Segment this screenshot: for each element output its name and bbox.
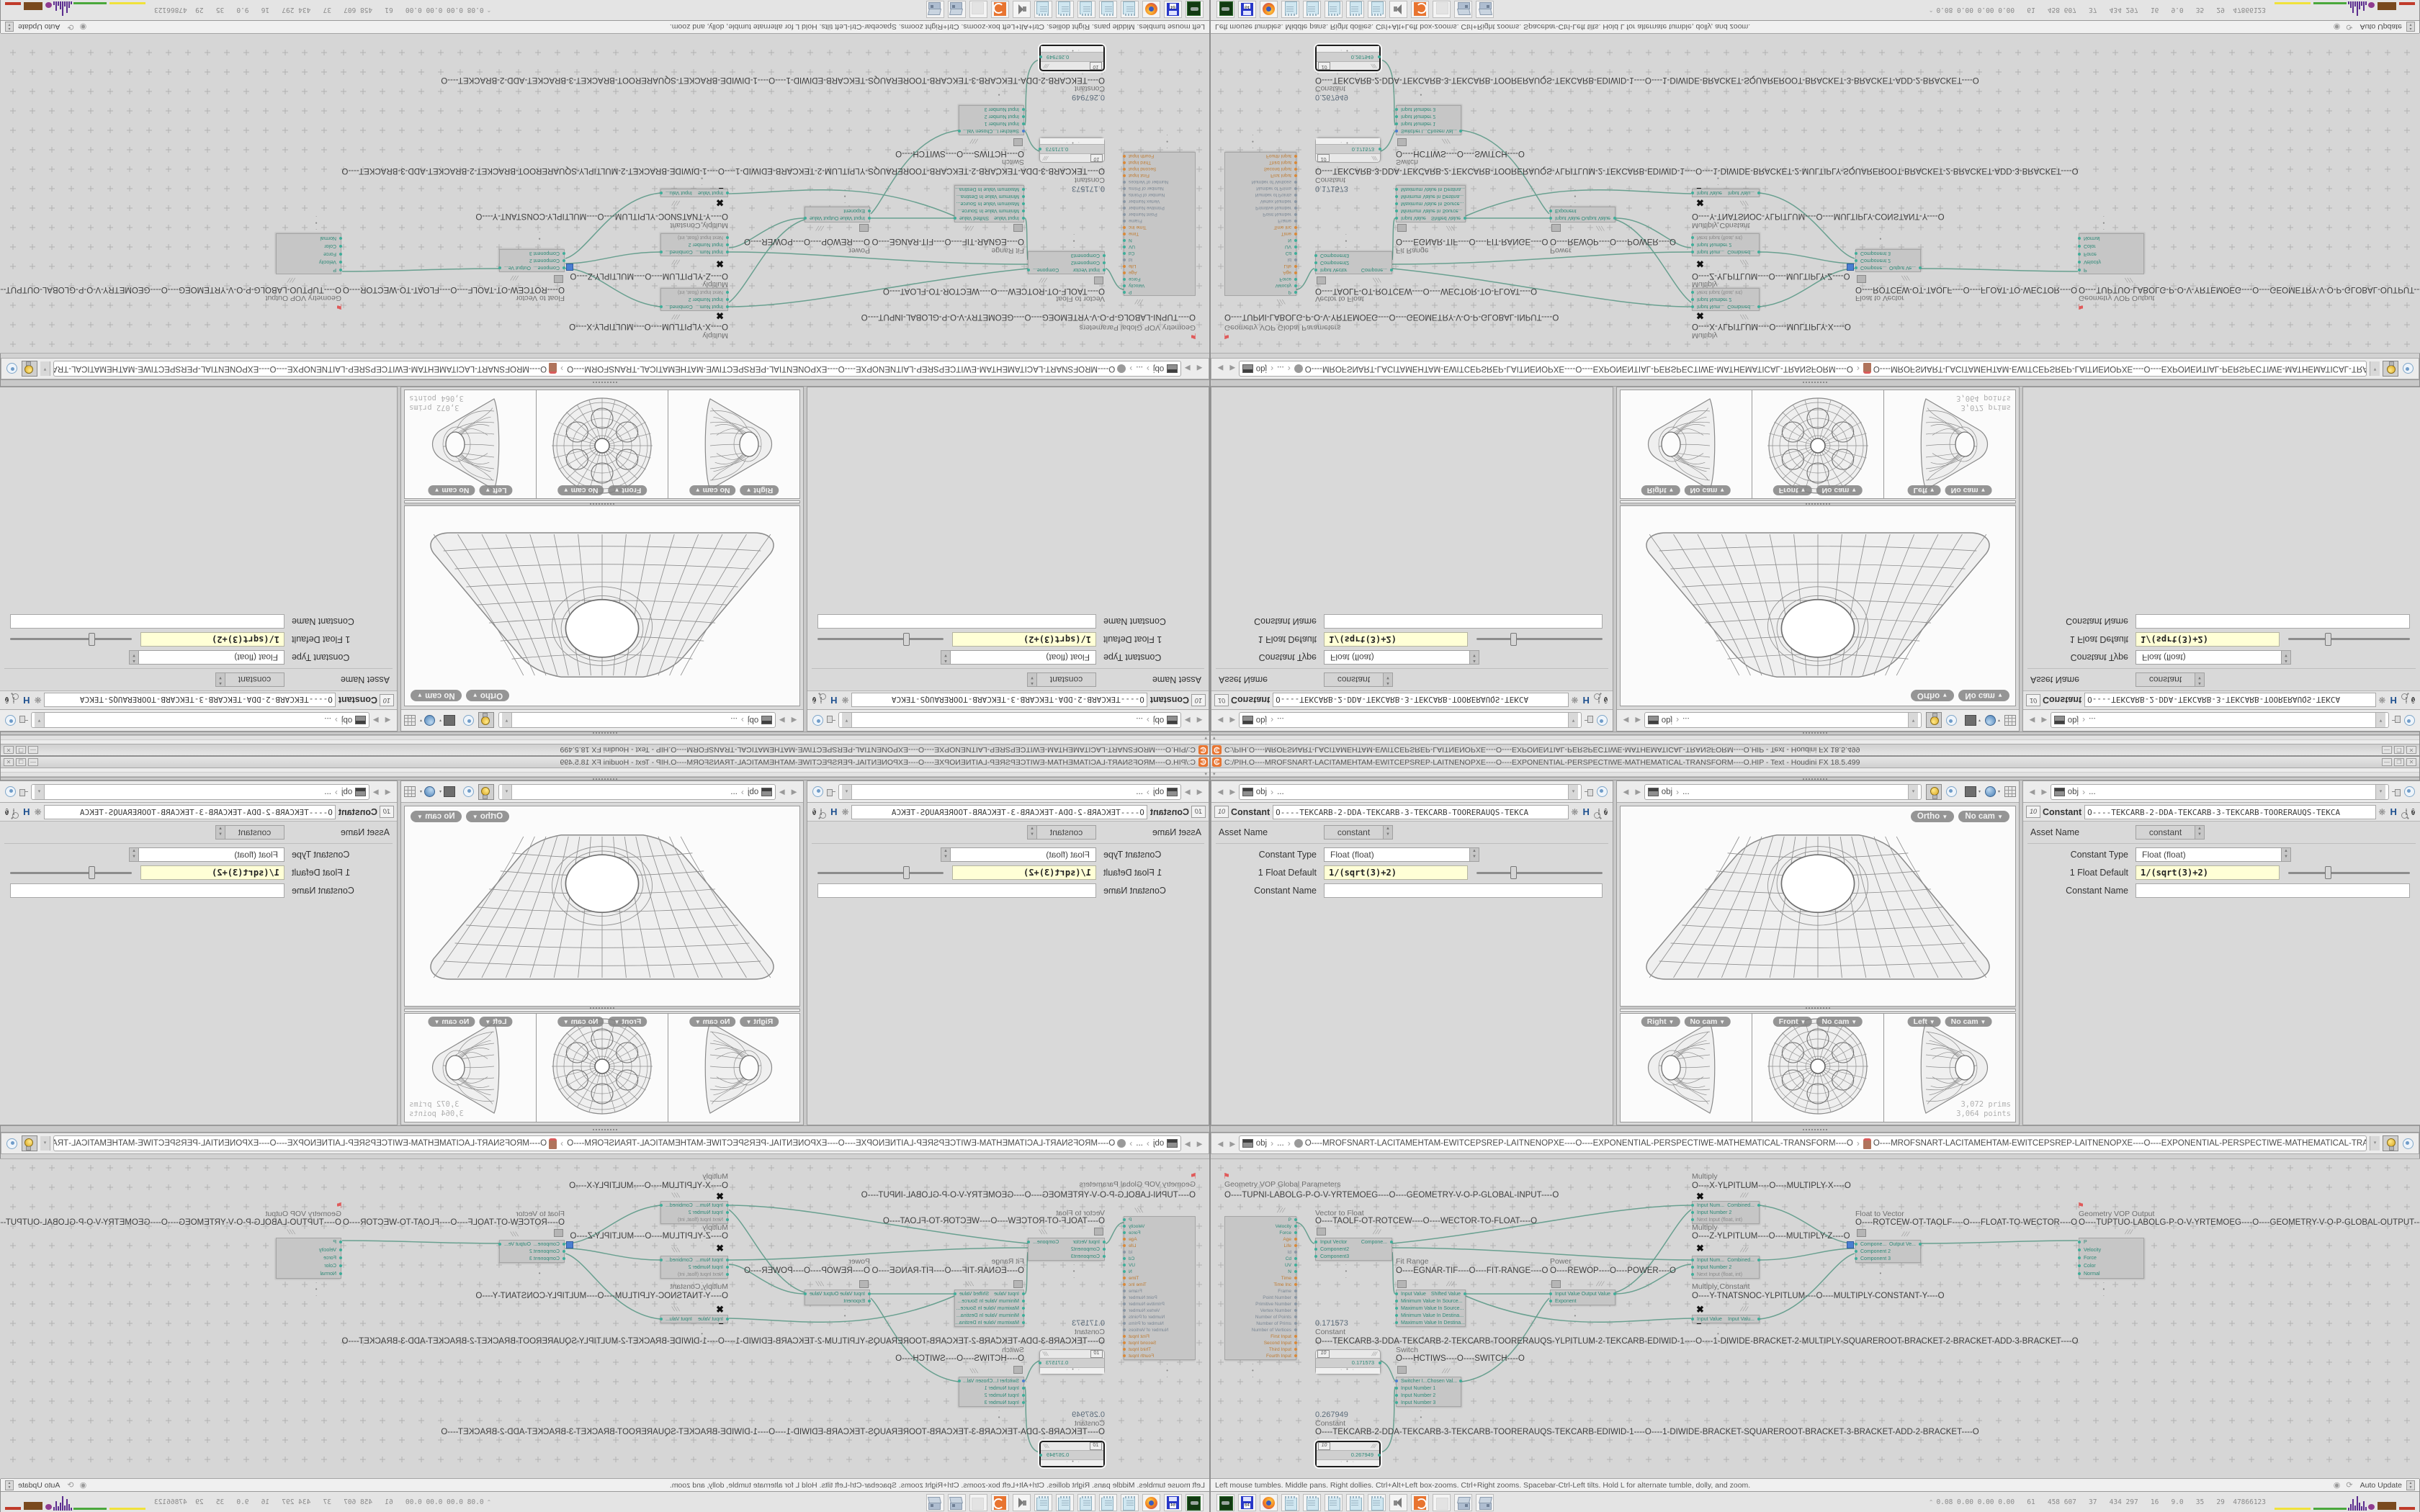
breadcrumb-ellipsis[interactable]: ... [324,716,331,725]
forward-arrow-icon[interactable]: ► [1183,364,1192,374]
back-arrow-icon[interactable]: ◄ [383,786,393,797]
notepad-toolbar-button[interactable] [1303,1494,1321,1511]
breadcrumb-ellipsis[interactable]: ... [1136,1139,1143,1148]
parameter-mode-icon[interactable]: 10 [1214,694,1229,706]
network-splitter[interactable] [1211,379,2419,387]
context-label[interactable]: obj [1256,1139,1267,1148]
network-editor[interactable]: ⚑Geometry VOP Global ParametersO----TUPN… [0,33,1209,354]
float-default-slider[interactable] [1476,865,1603,880]
viewport-front[interactable]: Front ▼ No cam ▼ [1752,1014,1884,1122]
camera-pill[interactable]: No cam ▼ [1958,811,2009,822]
float-default-slider[interactable] [1476,633,1603,647]
back-arrow-icon[interactable]: ◄ [2027,715,2037,726]
vertical-splitter[interactable] [804,780,807,1125]
shading-cube-icon[interactable] [444,786,455,797]
view-pill[interactable]: Front ▼ [1773,1017,1812,1027]
display-flag-icon[interactable]: ⚑ [2077,302,2084,311]
display-sphere-icon[interactable] [1985,715,1996,726]
node-box[interactable]: Input VectorCompone...Component2Componen… [1028,251,1105,274]
node-box[interactable]: Input ValueInput Valu... [660,1315,728,1323]
context-breadcrumb[interactable]: obj › ... ▾ [838,713,1181,729]
camera-pill[interactable]: No cam ▼ [1684,485,1731,495]
parent-crumb[interactable]: O----MROFSNART-LACITAMEHTAM-EWITCEPSREP-… [567,1139,1115,1148]
node-box[interactable]: Input Num...Combined...Input Number 2Nex… [660,233,728,256]
constant-name-input[interactable] [817,883,1096,898]
viewport-left[interactable]: Left ▼ No cam ▼ 3,072 prims3,064 points [1884,390,2015,498]
restore-button[interactable]: ❐ [16,746,26,754]
refresh-icon[interactable]: ⟳ [2346,1480,2352,1490]
notepad-toolbar-button[interactable] [1099,1494,1117,1511]
main-viewport[interactable]: Ortho ▼ No cam ▼ [1620,500,2016,706]
auto-update-label[interactable]: Auto Update [2360,23,2402,32]
node-box[interactable]: Compone...Output Ve...Component 2Compone… [1855,1240,1921,1263]
bypass-flag-icon[interactable]: ✖ [716,310,724,321]
bypass-flag-icon[interactable]: ✖ [716,258,724,269]
context-breadcrumb[interactable]: obj › ... ▾ [2051,713,2389,729]
camera-pill[interactable]: No cam ▼ [557,1017,604,1027]
ghost-toolbar-button[interactable] [1433,1,1451,19]
notepad-toolbar-button[interactable] [1281,1494,1299,1511]
float-default-input[interactable]: 1/(sqrt(3)+2) [2136,633,2280,647]
context-breadcrumb[interactable]: obj › ... ▾ [1239,784,1582,800]
bypass-flag-icon[interactable]: ✖ [1696,258,1704,269]
lighting-icon[interactable] [2383,361,2398,377]
restore-button[interactable]: ❐ [2394,746,2404,754]
float-default-input[interactable]: 1/(sqrt(3)+2) [952,865,1096,880]
forward-arrow-icon[interactable]: ► [371,715,380,726]
constant-type-dropdown[interactable]: Float (float)▲▼ [2136,847,2291,862]
help-icon[interactable]: ? [5,809,9,815]
shading-cube-icon[interactable] [1965,786,1976,797]
asset-name-stepper[interactable]: constant▲▼ [215,825,284,840]
link-target-icon[interactable] [463,715,474,726]
context-label[interactable]: obj [2068,716,2079,725]
link-target-icon[interactable] [6,1138,17,1149]
asset-name-stepper[interactable]: constant▲▼ [215,673,284,688]
node-box[interactable]: Input VectorCompone...Component2Componen… [1028,1238,1105,1261]
link-target-icon[interactable] [5,715,16,726]
forward-arrow-icon[interactable]: ► [1228,786,1237,797]
node-box[interactable]: Input ValueShifted ValueMinimum Value In… [1396,1290,1466,1327]
current-crumb[interactable]: O----MROFSNART-LACITAMEHTAM-EWITCEPSREP-… [53,1139,547,1148]
node-box[interactable]: Input VectorCompone...Component2Componen… [1315,1238,1392,1261]
viewport-splitter[interactable] [1620,1006,2016,1009]
pin-icon[interactable] [1584,788,1592,796]
node-name-input[interactable]: O----TEKCARB-2-DDA-TEKCARB-3-TEKCARB-TOO… [1273,805,1569,819]
back-arrow-icon[interactable]: ◄ [383,715,393,726]
view-pill[interactable]: Right ▼ [740,1017,779,1027]
camera-pill[interactable]: No cam ▼ [689,485,736,495]
node-box[interactable]: 10///0.171573 · • · [1039,138,1105,163]
projection-pill[interactable]: Ortho ▼ [1911,690,1954,701]
chevron-down-icon[interactable]: ▾ [842,714,852,728]
parent-crumb[interactable]: O----MROFSNART-LACITAMEHTAM-EWITCEPSREP-… [1305,364,1853,373]
chevron-down-icon[interactable]: ▾ [40,361,50,376]
breadcrumb-ellipsis[interactable]: ... [1136,364,1143,373]
context-breadcrumb[interactable]: obj › ... ▾ [1644,713,1922,729]
node-box[interactable]: 10///0.171573 · • · [1315,1349,1381,1374]
node-box[interactable]: 10///0.171573 · • · [1039,1349,1105,1374]
forward-arrow-icon[interactable]: ► [1633,715,1643,726]
back-arrow-icon[interactable]: ◄ [1216,364,1225,374]
constant-name-input[interactable] [1324,615,1603,629]
chevron-down-icon[interactable]: ▾ [2370,361,2380,376]
view-pill[interactable]: Left ▼ [479,1017,512,1027]
parameter-mode-icon[interactable]: 10 [2026,694,2040,706]
float-default-slider[interactable] [2288,633,2410,647]
close-button[interactable]: ✕ [2406,758,2416,766]
forward-arrow-icon[interactable]: ► [1633,786,1643,797]
parameter-mode-icon[interactable]: 10 [380,694,394,706]
pin-icon[interactable] [2391,716,2400,725]
display-badge-icon[interactable] [1847,264,1854,271]
snapshot-icon[interactable]: ◉ [80,22,87,32]
stepper-arrows-icon[interactable]: ▲▼ [216,826,225,839]
console-toolbar-button[interactable] [1186,1,1204,19]
notepad-toolbar-button[interactable] [1281,1,1299,19]
network-splitter[interactable] [1,379,1209,387]
parent-crumb[interactable]: O----MROFSNART-LACITAMEHTAM-EWITCEPSREP-… [1305,1139,1853,1148]
viewport-right[interactable]: Right ▼ No cam ▼ [1621,1014,1752,1122]
current-crumb[interactable]: O----MROFSNART-LACITAMEHTAM-EWITCEPSREP-… [1873,1139,2367,1148]
refresh-icon[interactable]: ⟳ [67,22,73,32]
slider-handle[interactable] [1510,634,1517,647]
print-toolbar-button[interactable] [1476,1,1494,19]
context-label[interactable]: obj [1662,716,1672,725]
slider-handle[interactable] [903,634,910,647]
node-box[interactable]: Input Num...Combined...Input Number 2Nex… [1692,1201,1760,1224]
context-label[interactable]: obj [1153,1139,1164,1148]
asset-name-stepper[interactable]: constant▲▼ [1324,673,1393,688]
view-pill[interactable]: Left ▼ [479,485,512,495]
node-box[interactable]: Input ValueOutput ValueExponent [1550,1290,1615,1305]
node-name-input[interactable]: O----TEKCARB-2-DDA-TEKCARB-3-TEKCARB-TOO… [1273,693,1569,708]
lighting-icon[interactable] [22,1135,37,1151]
stepper-arrows-icon[interactable]: ▲▼ [2195,674,2204,687]
firefox-toolbar-button[interactable] [1142,1,1160,19]
node-box[interactable]: PVelocityForceColorNormal [276,1238,341,1279]
back-arrow-icon[interactable]: ◄ [1216,715,1225,726]
notepad-toolbar-button[interactable] [1077,1,1095,19]
projection-pill[interactable]: Ortho ▼ [1911,811,1954,822]
breadcrumb-ellipsis[interactable]: ... [1277,1139,1284,1148]
slider-handle[interactable] [1510,866,1517,879]
view-pill[interactable]: Left ▼ [1908,1017,1941,1027]
breadcrumb-ellipsis[interactable]: ... [1277,364,1284,373]
help-icon[interactable]: ? [1604,809,1608,815]
camera-pill[interactable]: No cam ▼ [1945,1017,1992,1027]
speaker-toolbar-button[interactable] [1389,1,1407,19]
pin-icon[interactable] [828,716,836,725]
viewport-front[interactable]: Front ▼ No cam ▼ [536,390,668,498]
node-box[interactable]: Input Num...Combined...Input Number 2Nex… [1692,288,1760,311]
viewport-front[interactable]: Front ▼ No cam ▼ [1752,390,1884,498]
current-crumb[interactable]: O----MROFSNART-LACITAMEHTAM-EWITCEPSREP-… [1873,364,2367,373]
refresh-icon[interactable]: ⟳ [2346,22,2352,32]
horizontal-splitter[interactable] [1211,732,2419,735]
camera-pill[interactable]: No cam ▼ [1945,485,1992,495]
breadcrumb-ellipsis[interactable]: ... [2089,788,2096,796]
chevron-down-icon[interactable]: ▾ [502,785,512,799]
context-breadcrumb[interactable]: obj › ... ▾ [1239,713,1582,729]
parameter-mode-icon[interactable]: 10 [2026,806,2040,818]
camera-pill[interactable]: No cam ▼ [429,485,475,495]
node-box[interactable]: Input ValueShifted ValueMinimum Value In… [954,185,1024,222]
node-box[interactable]: 10///0.171573 · • · [1315,138,1381,163]
back-arrow-icon[interactable]: ◄ [1195,1138,1204,1149]
constant-name-input[interactable] [2136,615,2410,629]
context-label[interactable]: obj [341,788,352,796]
node-box[interactable]: 10///0.267949 · • · [1039,1441,1105,1467]
forward-arrow-icon[interactable]: ► [1228,1138,1237,1149]
asset-name-stepper[interactable]: constant▲▼ [1027,825,1096,840]
pin-icon[interactable] [20,788,29,796]
houdini-toolbar-button[interactable] [991,1494,1009,1511]
lighting-icon[interactable] [478,713,494,729]
notepad-toolbar-button[interactable] [1303,1,1321,19]
node-box[interactable]: Input ValueInput Valu... [1692,189,1760,197]
chevron-down-icon[interactable]: ▾ [1568,714,1578,728]
context-label[interactable]: obj [748,716,758,725]
stepper-arrows-icon[interactable]: ▲▼ [1469,652,1479,665]
stepper-arrows-icon[interactable]: ▲▼ [130,652,139,665]
gear-icon[interactable]: ❋ [35,807,42,817]
stepper-arrows-icon[interactable]: ▲▼ [1028,674,1037,687]
snapshot-icon[interactable]: ◉ [2334,1480,2341,1490]
breadcrumb-ellipsis[interactable]: ... [1682,788,1690,796]
auto-update-label[interactable]: Auto Update [18,23,60,32]
float-default-slider[interactable] [10,865,132,880]
main-viewport[interactable]: Ortho ▼ No cam ▼ [404,806,800,1012]
node-box[interactable]: Input Num...Combined...Input Number 2Nex… [660,288,728,311]
perf-caret-icon[interactable]: ⌃ [487,6,492,13]
network-breadcrumb[interactable]: obj › ... › O----MROFSNART-LACITAMEHTAM-… [53,361,1181,377]
node-box[interactable]: PVelocityForceColorNormal [276,233,341,274]
asset-name-stepper[interactable]: constant▲▼ [1324,825,1393,840]
parameter-mode-icon[interactable]: 10 [380,806,394,818]
constant-type-dropdown[interactable]: Float (float)▲▼ [1324,651,1479,665]
parameter-mode-icon[interactable]: 10 [1191,806,1206,818]
context-breadcrumb[interactable]: obj › ... ▾ [498,784,776,800]
view-pill[interactable]: Front ▼ [609,1017,647,1027]
link-target-icon[interactable] [463,786,474,797]
firefox-toolbar-button[interactable] [1142,1494,1160,1511]
view-pill[interactable]: Left ▼ [1908,485,1941,495]
context-label[interactable]: obj [1662,788,1672,796]
link-target-icon[interactable] [1946,715,1957,726]
pin-icon[interactable] [828,788,836,796]
speaker-toolbar-button[interactable] [1389,1494,1407,1511]
node-name-input[interactable]: O----TEKCARB-2-DDA-TEKCARB-3-TEKCARB-TOO… [851,805,1147,819]
chevron-down-icon[interactable]: ▾ [1213,771,1216,777]
save64-toolbar-button[interactable]: 64 [1238,1,1256,19]
display-flag-icon[interactable]: ⚑ [1190,331,1197,341]
save64-toolbar-button[interactable]: 64 [1164,1,1182,19]
node-box[interactable]: Compone...Output Ve...Component 2Compone… [499,1240,565,1263]
shading-cube-icon[interactable] [1965,715,1976,726]
float-default-slider[interactable] [10,633,132,647]
node-box[interactable]: Compone...Output Ve...Component 2Compone… [1855,249,1921,272]
chevron-down-icon[interactable]: ▾ [502,714,512,728]
camera-pill[interactable]: No cam ▼ [1816,485,1863,495]
network-editor[interactable]: ⚑Geometry VOP Global ParametersO----TUPN… [0,1158,1209,1479]
context-label[interactable]: obj [1256,364,1267,373]
chevron-down-icon[interactable]: ▾ [40,1136,50,1151]
back-arrow-icon[interactable]: ◄ [1195,364,1204,374]
link-target-icon[interactable] [2404,715,2415,726]
notepad-toolbar-button[interactable] [1346,1,1364,19]
gear-icon[interactable]: ❋ [2378,807,2385,817]
speaker-toolbar-button[interactable] [1013,1494,1031,1511]
chevron-down-icon[interactable]: ▾ [842,785,852,799]
print-toolbar-button[interactable] [1454,1494,1472,1511]
print-toolbar-button[interactable] [1454,1,1472,19]
auto-update-label[interactable]: Auto Update [18,1481,60,1490]
constant-name-input[interactable] [817,615,1096,629]
ghost-toolbar-button[interactable] [969,1494,987,1511]
node-box[interactable]: Switcher I...Chosen Val...Input Number 1… [959,105,1024,135]
slider-handle[interactable] [89,634,95,647]
constant-name-input[interactable] [10,615,284,629]
auto-update-label[interactable]: Auto Update [2360,1481,2402,1490]
print-toolbar-button[interactable] [926,1,944,19]
camera-pill[interactable]: No cam ▼ [689,1017,736,1027]
asset-name-stepper[interactable]: constant▲▼ [1027,673,1096,688]
parent-crumb[interactable]: O----MROFSNART-LACITAMEHTAM-EWITCEPSREP-… [567,364,1115,373]
view-pill[interactable]: Front ▼ [1773,485,1812,495]
save64-toolbar-button[interactable]: 64 [1164,1494,1182,1511]
node-box[interactable]: PVelocityForceAgeLifeIdCdUVNTimeTime Inc… [1124,1216,1196,1360]
houdini-h-icon[interactable]: H [830,695,837,706]
shading-cube-icon[interactable] [444,715,455,726]
gear-icon[interactable]: ❋ [842,807,849,817]
bypass-flag-icon[interactable]: ✖ [716,1243,724,1254]
breadcrumb-ellipsis[interactable]: ... [1682,716,1690,725]
gear-icon[interactable]: ❋ [1571,807,1578,817]
view-pill[interactable]: Right ▼ [1641,1017,1680,1027]
node-box[interactable]: Compone...Output Ve...Component 2Compone… [499,249,565,272]
main-viewport[interactable]: Ortho ▼ No cam ▼ [1620,806,2016,1012]
perf-caret-icon[interactable]: ⌃ [1929,6,1934,13]
display-badge-icon[interactable] [566,264,573,271]
refresh-icon[interactable]: ⟳ [67,1480,73,1490]
notepad-toolbar-button[interactable] [1368,1,1386,19]
chevron-down-icon[interactable]: ▾ [1568,785,1578,799]
chevron-down-icon[interactable]: ▾ [1908,785,1918,799]
back-arrow-icon[interactable]: ◄ [2027,786,2037,797]
node-box[interactable]: 10///0.267949 · • · [1315,1441,1381,1467]
gear-icon[interactable]: ❋ [35,696,42,706]
notepad-toolbar-button[interactable] [1325,1,1343,19]
camera-pill[interactable]: No cam ▼ [1958,690,2009,701]
forward-arrow-icon[interactable]: ► [1228,364,1237,374]
breadcrumb-ellipsis[interactable]: ... [1136,716,1143,725]
firefox-toolbar-button[interactable] [1260,1494,1278,1511]
back-arrow-icon[interactable]: ◄ [1216,786,1225,797]
forward-arrow-icon[interactable]: ► [2040,786,2049,797]
context-breadcrumb[interactable]: obj › ... ▾ [1644,784,1922,800]
update-mode-stepper[interactable]: ▲▼ [5,22,14,32]
node-box[interactable]: Input ValueShifted ValueMinimum Value In… [954,1290,1024,1327]
link-target-icon[interactable] [812,786,823,797]
context-breadcrumb[interactable]: obj › ... ▾ [31,713,369,729]
viewport-left[interactable]: Left ▼ No cam ▼ 3,072 prims3,064 points [405,1014,536,1122]
network-editor[interactable]: ⚑Geometry VOP Global ParametersO----TUPN… [1211,1158,2420,1479]
context-label[interactable]: obj [748,788,758,796]
node-box[interactable]: Input Num...Combined...Input Number 2Nex… [660,1256,728,1279]
link-target-icon[interactable] [812,715,823,726]
pin-icon[interactable] [1584,716,1592,725]
asset-name-stepper[interactable]: constant▲▼ [2136,825,2205,840]
firefox-toolbar-button[interactable] [1260,1,1278,19]
window-titlebar[interactable]: C:/PIH.O----MROFSNART-LACITAMEHTAM-EWITC… [1,744,1209,755]
node-box[interactable]: Input ValueOutput ValueExponent [805,207,870,222]
back-arrow-icon[interactable]: ◄ [789,715,799,726]
notepad-toolbar-button[interactable] [1121,1,1139,19]
window-titlebar[interactable]: C:/PIH.O----MROFSNART-LACITAMEHTAM-EWITC… [1211,757,2419,768]
slider-handle[interactable] [2325,634,2331,647]
constant-name-input[interactable] [1324,883,1603,898]
help-icon[interactable]: ? [1604,697,1608,703]
node-box[interactable]: Input ValueOutput ValueExponent [805,1290,870,1305]
float-default-slider[interactable] [817,865,944,880]
constant-name-input[interactable] [2136,883,2410,898]
back-arrow-icon[interactable]: ◄ [1216,1138,1225,1149]
context-label[interactable]: obj [2068,788,2079,796]
houdini-toolbar-button[interactable] [991,1,1009,19]
help-icon[interactable]: ? [2411,697,2415,703]
forward-arrow-icon[interactable]: ► [777,715,786,726]
viewport-right[interactable]: Right ▼ No cam ▼ [668,390,799,498]
notepad-toolbar-button[interactable] [1346,1494,1364,1511]
parameter-mode-icon[interactable]: 10 [1191,694,1206,706]
notepad-toolbar-button[interactable] [1121,1494,1139,1511]
close-button[interactable]: ✕ [4,746,14,754]
speaker-toolbar-button[interactable] [1013,1,1031,19]
node-box[interactable]: 10///0.267949 · • · [1039,45,1105,71]
snapshot-icon[interactable]: ◉ [2334,22,2341,32]
notepad-toolbar-button[interactable] [1077,1494,1095,1511]
vertical-splitter[interactable] [398,780,400,1125]
node-name-input[interactable]: O----TEKCARB-2-DDA-TEKCARB-3-TEKCARB-TOO… [2084,805,2376,819]
stepper-arrows-icon[interactable]: ▲▼ [1028,826,1037,839]
float-default-input[interactable]: 1/(sqrt(3)+2) [1324,633,1468,647]
houdini-h-icon[interactable]: H [1582,806,1589,817]
chevron-down-icon[interactable]: ▾ [2375,714,2385,728]
save64-toolbar-button[interactable]: 64 [1238,1494,1256,1511]
back-arrow-icon[interactable]: ◄ [1621,715,1631,726]
minimize-button[interactable]: — [2382,758,2392,766]
houdini-h-icon[interactable]: H [2390,695,2396,706]
pin-icon[interactable] [20,716,29,725]
projection-pill[interactable]: Ortho ▼ [466,690,509,701]
link-target-icon[interactable] [2403,1138,2414,1149]
breadcrumb-ellipsis[interactable]: ... [730,788,738,796]
notepad-toolbar-button[interactable] [1034,1,1052,19]
ghost-toolbar-button[interactable] [1433,1494,1451,1511]
float-default-slider[interactable] [2288,865,2410,880]
breadcrumb-ellipsis[interactable]: ... [1277,788,1284,796]
stepper-arrows-icon[interactable]: ▲▼ [1383,674,1392,687]
node-name-input[interactable]: O----TEKCARB-2-DDA-TEKCARB-3-TEKCARB-TOO… [2084,693,2376,708]
houdini-h-icon[interactable]: H [1582,695,1589,706]
camera-pill[interactable]: No cam ▼ [411,690,462,701]
print-toolbar-button[interactable] [1476,1494,1494,1511]
stepper-arrows-icon[interactable]: ▲▼ [2281,652,2290,665]
houdini-toolbar-button[interactable] [1411,1494,1429,1511]
node-box[interactable]: Switcher I...Chosen Val...Input Number 1… [1396,105,1461,135]
node-box[interactable]: Switcher I...Chosen Val...Input Number 1… [1396,1377,1461,1407]
